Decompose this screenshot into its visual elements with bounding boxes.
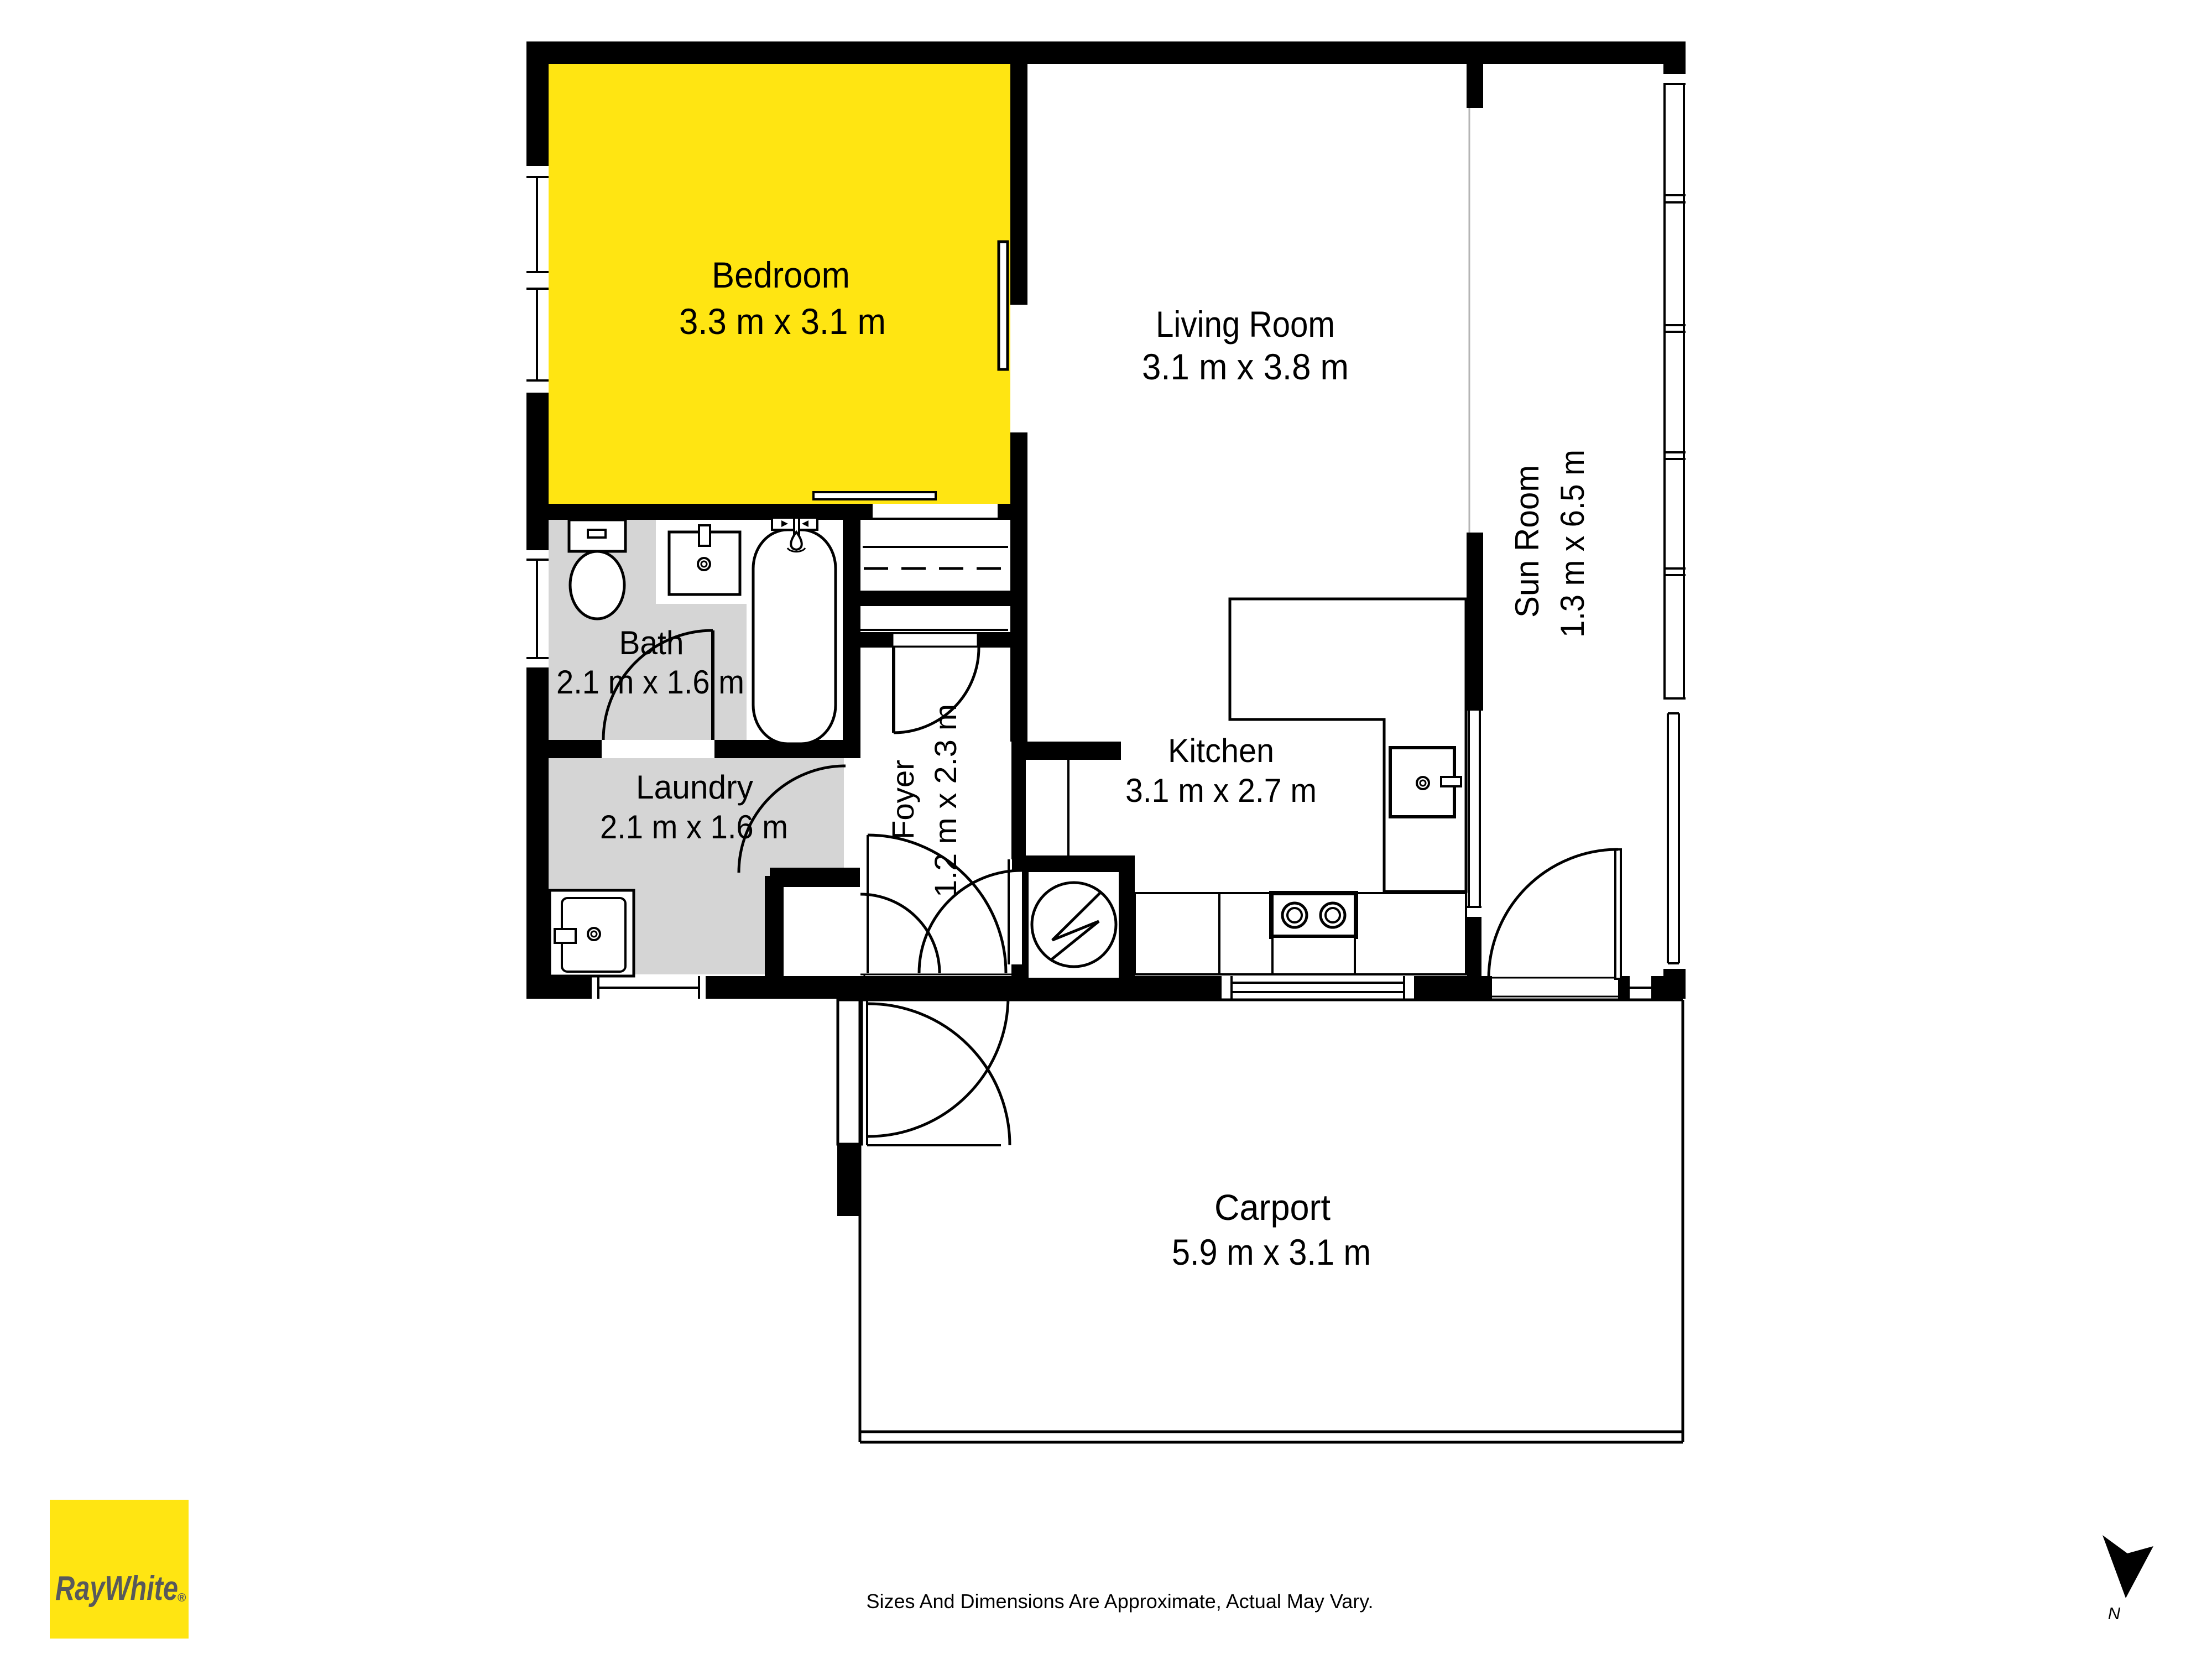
- svg-text:Living Room: Living Room: [1156, 304, 1335, 345]
- svg-text:Sun Room: Sun Room: [1509, 465, 1546, 618]
- svg-text:Bedroom: Bedroom: [712, 254, 850, 295]
- svg-text:Sizes And Dimensions Are Appro: Sizes And Dimensions Are Approximate, Ac…: [866, 1590, 1373, 1613]
- svg-text:5.9 m x 3.1 m: 5.9 m x 3.1 m: [1172, 1232, 1371, 1272]
- svg-text:2.1 m x 1.6 m: 2.1 m x 1.6 m: [600, 808, 788, 846]
- svg-text:Carport: Carport: [1214, 1187, 1331, 1228]
- svg-text:N: N: [2108, 1604, 2121, 1623]
- svg-text:Bath: Bath: [619, 624, 684, 661]
- svg-text:Laundry: Laundry: [636, 769, 753, 806]
- svg-text:RayWhite: RayWhite: [55, 1569, 178, 1608]
- svg-text:2.1 m x 1.6 m: 2.1 m x 1.6 m: [556, 664, 744, 701]
- svg-text:1.2 m x 2.3 m: 1.2 m x 2.3 m: [928, 704, 963, 898]
- svg-text:Foyer: Foyer: [885, 760, 920, 839]
- svg-text:Kitchen: Kitchen: [1168, 732, 1274, 769]
- svg-text:3.1 m x 3.8 m: 3.1 m x 3.8 m: [1142, 346, 1349, 387]
- svg-text:3.3 m x 3.1 m: 3.3 m x 3.1 m: [679, 301, 886, 342]
- svg-text:®: ®: [178, 1592, 186, 1604]
- svg-text:3.1 m x 2.7 m: 3.1 m x 2.7 m: [1125, 772, 1317, 809]
- svg-text:1.3 m x 6.5 m: 1.3 m x 6.5 m: [1554, 450, 1591, 638]
